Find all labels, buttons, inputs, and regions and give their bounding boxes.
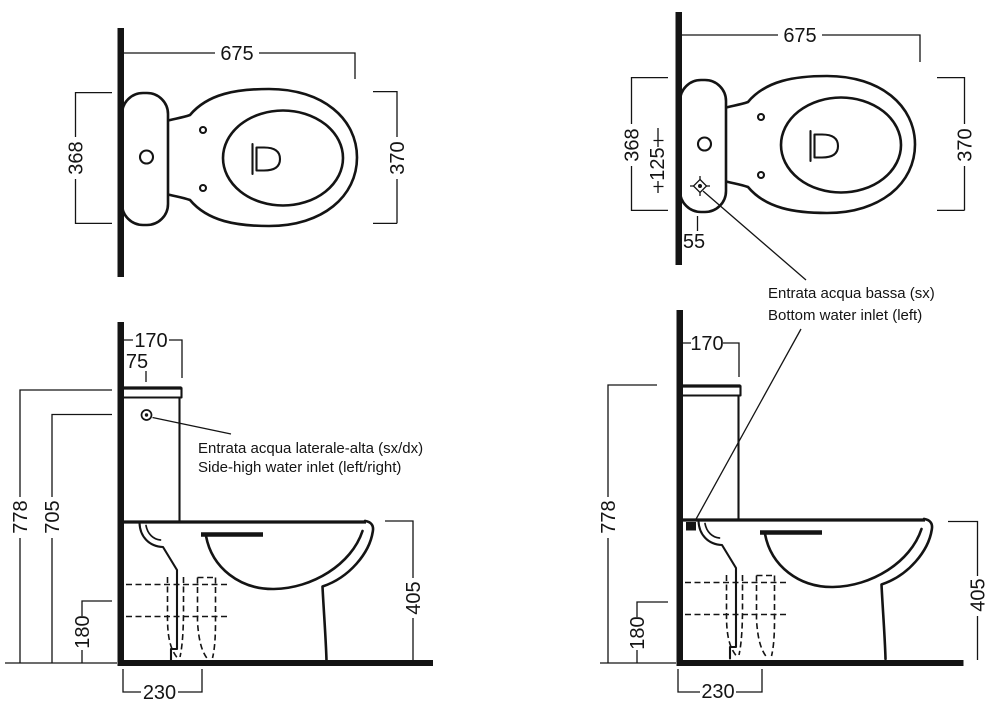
dim-tank-depth: 170 — [134, 330, 167, 352]
dim-inlet-setback: 75 — [126, 351, 148, 373]
dim-inlet-offset: 125 — [647, 147, 669, 180]
dim-rim-height: 405 — [968, 578, 990, 611]
side-high-inlet-marker — [142, 410, 152, 420]
dim-depth: 368 — [66, 141, 88, 174]
annotation-bottom-inlet-line2: Bottom water inlet (left) — [768, 307, 922, 324]
dim-width: 675 — [220, 43, 253, 65]
annotation-side-high-inlet-line2: Side-high water inlet (left/right) — [198, 459, 401, 476]
wall-line — [677, 310, 684, 666]
wall-line — [676, 12, 683, 265]
dim-depth: 368 — [622, 128, 644, 161]
annotation-side-high-inlet-line1: Entrata acqua laterale-alta (sx/dx) — [198, 440, 423, 457]
dim-outlet-height: 180 — [72, 615, 94, 648]
dim-total-height: 778 — [10, 500, 32, 533]
dim-tank-depth: 170 — [690, 333, 723, 355]
dim-outlet-depth: 230 — [701, 681, 734, 703]
floor-line — [677, 660, 964, 666]
dim-inlet-height: 705 — [42, 500, 64, 533]
dim-outlet-height: 180 — [627, 616, 649, 649]
wall-line — [118, 28, 125, 277]
dim-width: 675 — [783, 25, 816, 47]
view-side-right: 170 778 180 230 405 — [598, 310, 990, 703]
wc-dimension-drawing: 675 368 370 675 368 125 55 370 Entrata a… — [0, 0, 1000, 713]
dim-bowl-width: 370 — [387, 141, 409, 174]
leader-side-high-inlet — [153, 418, 232, 435]
dim-bowl-width: 370 — [955, 128, 977, 161]
dim-line-total-height — [20, 390, 112, 663]
dim-outlet-depth: 230 — [143, 682, 176, 704]
view-plan-right: 675 368 125 55 370 Entrata acqua bassa (… — [622, 12, 977, 521]
annotation-bottom-inlet-line1: Entrata acqua bassa (sx) — [768, 285, 935, 302]
bottom-inlet-marker-side — [686, 522, 696, 531]
dim-inlet-wall-offset: 55 — [683, 231, 705, 253]
dim-total-height: 778 — [598, 500, 620, 533]
dim-rim-height: 405 — [403, 581, 425, 614]
leader-bottom-inlet-plan — [703, 191, 806, 280]
leader-bottom-inlet-side — [695, 329, 801, 521]
view-side-left: 170 75 778 705 180 230 405 Entrata acqua… — [5, 322, 433, 704]
view-plan-left: 675 368 370 — [66, 28, 410, 277]
floor-line — [118, 660, 434, 666]
technical-drawing-sheet: 675 368 370 675 368 125 55 370 Entrata a… — [0, 0, 1000, 713]
wall-line — [118, 322, 125, 666]
